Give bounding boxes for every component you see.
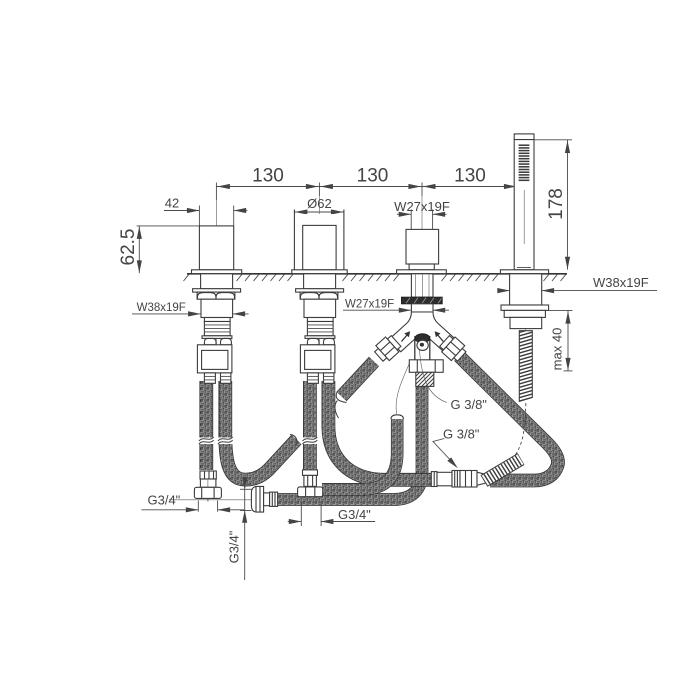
svg-text:130: 130 bbox=[252, 166, 284, 187]
svg-text:G3/4": G3/4" bbox=[148, 493, 181, 508]
svg-text:130: 130 bbox=[454, 166, 486, 187]
svg-text:G 3/8": G 3/8" bbox=[443, 427, 480, 442]
svg-text:W38x19F: W38x19F bbox=[137, 302, 186, 314]
svg-text:W38x19F: W38x19F bbox=[593, 275, 649, 290]
svg-text:G3/4": G3/4" bbox=[338, 507, 371, 522]
svg-text:max 40: max 40 bbox=[550, 328, 565, 371]
svg-text:W27x19F: W27x19F bbox=[345, 299, 394, 311]
svg-text:178: 178 bbox=[546, 188, 567, 220]
svg-text:130: 130 bbox=[357, 166, 389, 187]
svg-text:G 3/8": G 3/8" bbox=[451, 397, 488, 412]
svg-text:G3/4": G3/4" bbox=[227, 530, 242, 563]
svg-text:42: 42 bbox=[165, 196, 179, 211]
svg-text:62.5: 62.5 bbox=[118, 229, 139, 266]
